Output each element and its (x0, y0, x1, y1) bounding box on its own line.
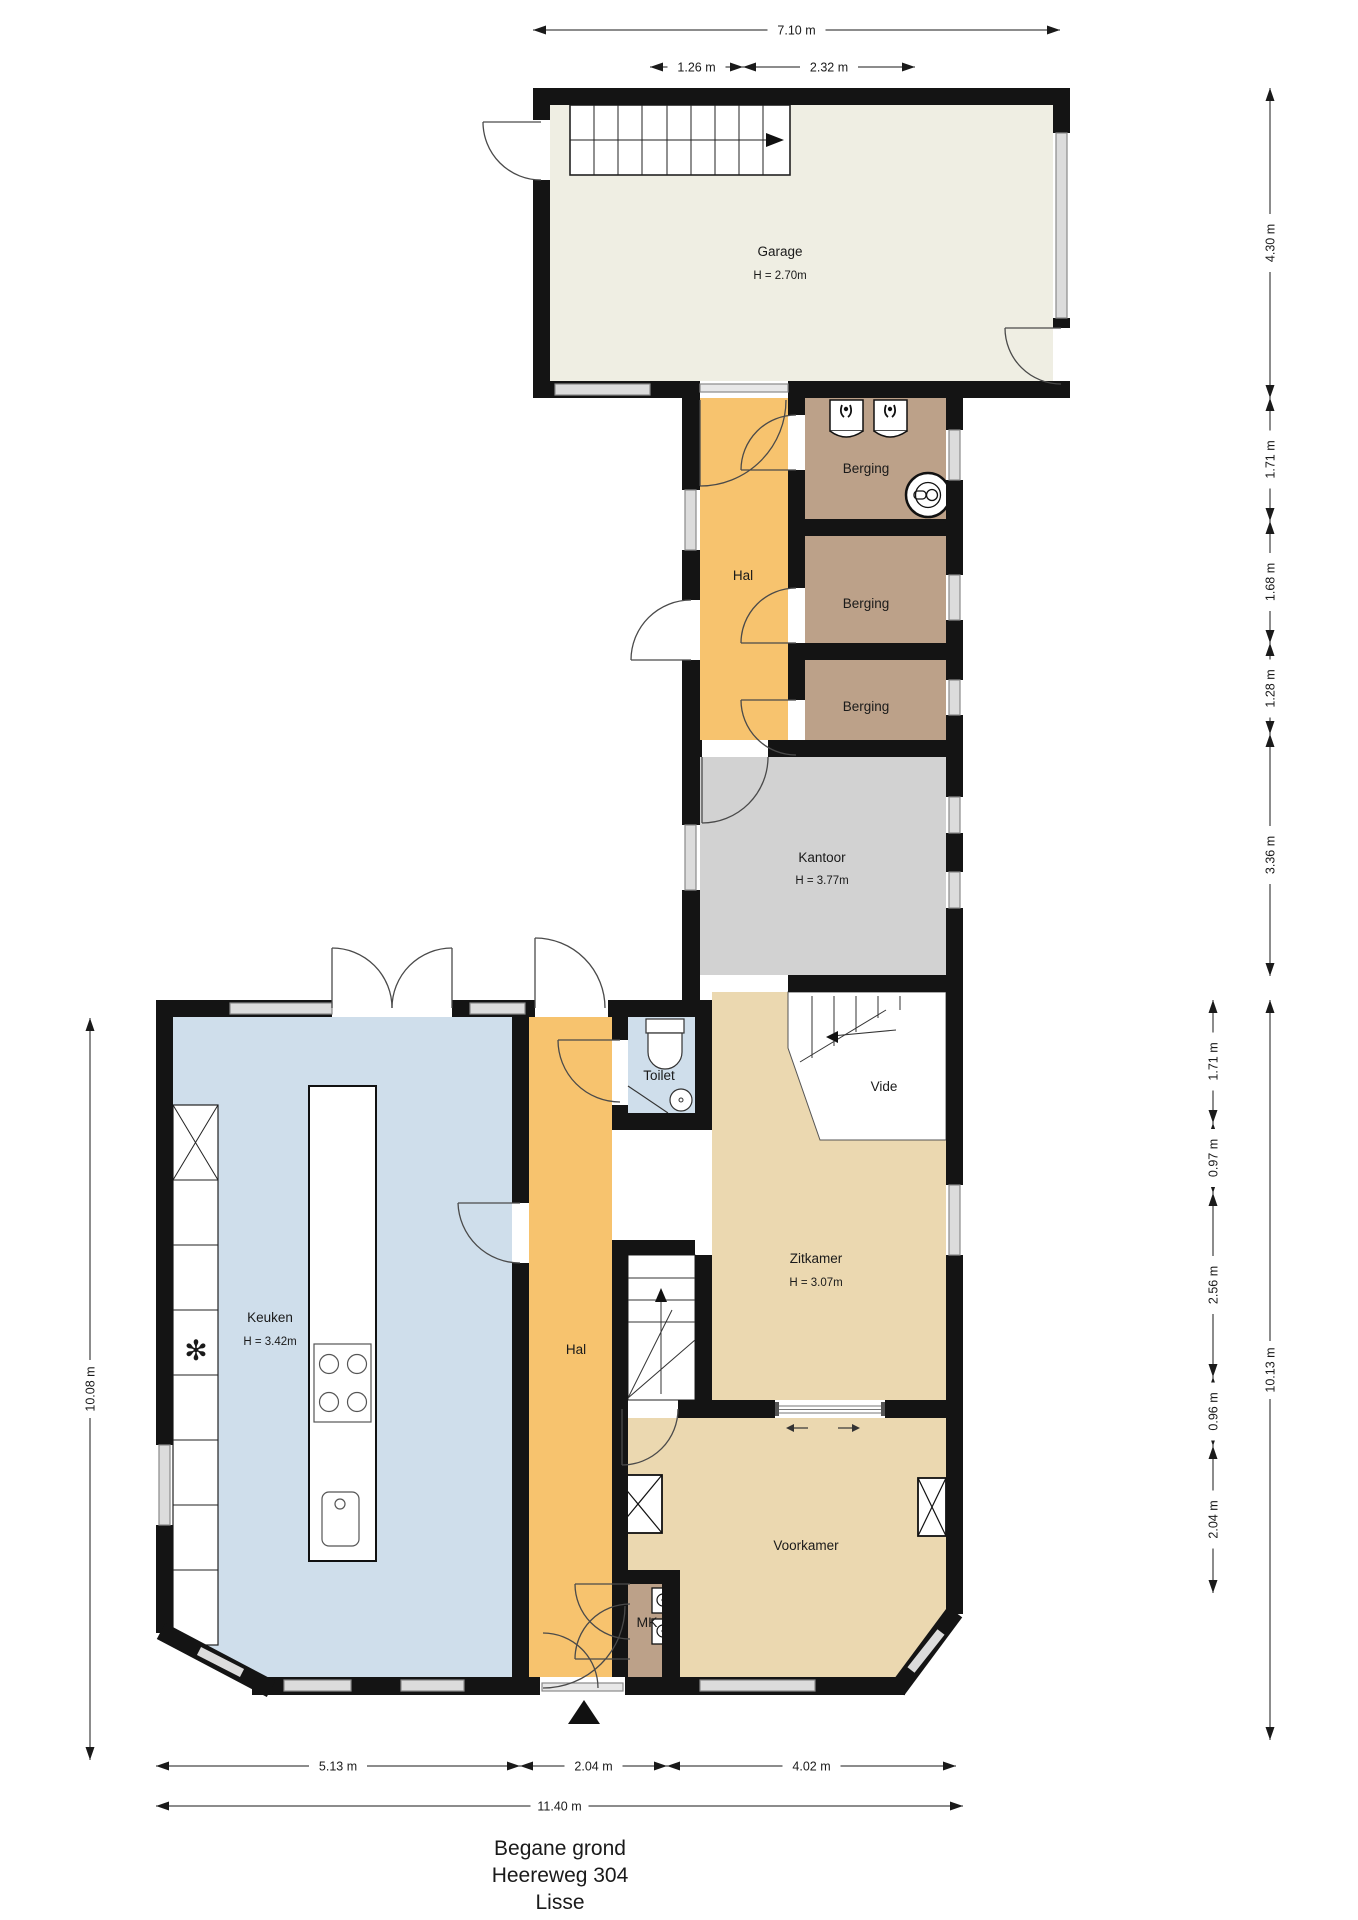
dimension: 0.97 m (1205, 1123, 1221, 1193)
window (1056, 133, 1067, 318)
kitchen-counter: ✻ (173, 1105, 218, 1645)
dimension: 1.71 m (1205, 1000, 1221, 1123)
dimension: 1.26 m (650, 59, 743, 75)
dimension-label: 4.30 m (1264, 224, 1278, 262)
dimension: 1.68 m (1262, 521, 1278, 643)
window (685, 490, 696, 550)
window (949, 1185, 960, 1255)
label-toilet: Toilet (643, 1068, 675, 1083)
corridor-floor (628, 1130, 712, 1240)
label-zitkamer-height: H = 3.07m (789, 1277, 842, 1289)
room-berging-2 (805, 536, 946, 643)
label-voorkamer: Voorkamer (773, 1538, 839, 1553)
window (555, 384, 650, 395)
toilet-icon (646, 1019, 684, 1069)
label-berging-3: Berging (843, 699, 890, 714)
window (949, 797, 960, 833)
dimension-label: 1.71 m (1264, 440, 1278, 478)
label-keuken-height: H = 3.42m (243, 1336, 296, 1348)
dimension-label: 2.32 m (810, 61, 848, 75)
dimension: 0.96 m (1205, 1377, 1221, 1446)
dimension: 2.04 m (1205, 1446, 1221, 1593)
window (949, 430, 960, 480)
floorplan-page: ✻ (0, 0, 1358, 1920)
washing-machine-icon (874, 400, 907, 437)
label-berging-1: Berging (843, 461, 890, 476)
dimension: 1.71 m (1262, 398, 1278, 521)
title-floor: Begane grond (494, 1837, 626, 1860)
sink-icon (322, 1492, 359, 1546)
boiler-icon (906, 473, 950, 517)
dimension-label: 11.40 m (537, 1800, 581, 1814)
toilet-sink-icon (670, 1089, 692, 1111)
dimension-label: 1.71 m (1207, 1042, 1221, 1080)
window (470, 1003, 525, 1014)
window (949, 680, 960, 715)
washing-machine-icon (830, 400, 863, 437)
label-zitkamer: Zitkamer (790, 1251, 843, 1266)
main-staircase-icon (628, 1255, 695, 1400)
dimension: 2.32 m (743, 59, 915, 75)
dimension-label: 5.13 m (319, 1760, 357, 1774)
title-city: Lisse (535, 1891, 584, 1914)
plan-title: Begane grond Heereweg 304 Lisse (492, 1837, 629, 1914)
label-garage: Garage (757, 244, 802, 259)
title-street: Heereweg 304 (492, 1864, 629, 1887)
dimension: 4.02 m (667, 1758, 956, 1774)
window (284, 1680, 351, 1691)
dimension-label: 10.08 m (84, 1366, 98, 1411)
dimension-label: 1.28 m (1264, 669, 1278, 707)
label-vide: Vide (871, 1079, 898, 1094)
room-kantoor (700, 757, 946, 975)
dimension: 2.04 m (520, 1758, 667, 1774)
garage-staircase-icon (570, 105, 790, 175)
dimension: 10.13 m (1262, 1000, 1278, 1740)
window (685, 825, 696, 890)
dimension: 1.28 m (1262, 643, 1278, 734)
dimension: 11.40 m (156, 1798, 963, 1814)
window (230, 1003, 332, 1014)
dimension-label: 1.68 m (1264, 563, 1278, 601)
dimension: 2.56 m (1205, 1193, 1221, 1377)
window (159, 1445, 170, 1525)
dimension-label: 7.10 m (777, 24, 815, 38)
dimension-label: 10.13 m (1264, 1347, 1278, 1392)
label-keuken: Keuken (247, 1310, 293, 1325)
dimension: 7.10 m (533, 22, 1060, 38)
dimension-label: 0.96 m (1207, 1392, 1221, 1430)
dimension: 3.36 m (1262, 734, 1278, 976)
dimension-label: 1.26 m (677, 61, 715, 75)
dimension-label: 0.97 m (1207, 1139, 1221, 1177)
dimension-label: 3.36 m (1264, 836, 1278, 874)
label-hal-top: Hal (733, 568, 753, 583)
label-kantoor-height: H = 3.77m (795, 875, 848, 887)
window (401, 1680, 464, 1691)
window (700, 1680, 815, 1691)
dimension: 10.08 m (82, 1018, 98, 1760)
dimension: 4.30 m (1262, 88, 1278, 398)
label-meterkast: MK (637, 1614, 659, 1630)
entrance-arrow-icon (568, 1700, 600, 1724)
floorplan-drawing: ✻ (0, 0, 1358, 1920)
threshold (700, 384, 788, 392)
closet-x-icon (918, 1478, 946, 1536)
dimension-label: 2.04 m (1207, 1500, 1221, 1538)
dimension-label: 2.56 m (1207, 1266, 1221, 1304)
dimension-label: 2.04 m (574, 1760, 612, 1774)
label-garage-height: H = 2.70m (753, 270, 806, 282)
label-berging-2: Berging (843, 596, 890, 611)
kitchen-island (309, 1086, 376, 1561)
dimension-label: 4.02 m (792, 1760, 830, 1774)
window (949, 575, 960, 620)
freezer-snowflake-icon: ✻ (184, 1335, 207, 1366)
window (949, 872, 960, 908)
label-kantoor: Kantoor (798, 850, 846, 865)
stove-icon (314, 1344, 371, 1422)
label-hal-lower: Hal (566, 1342, 586, 1357)
dimension: 5.13 m (156, 1758, 520, 1774)
